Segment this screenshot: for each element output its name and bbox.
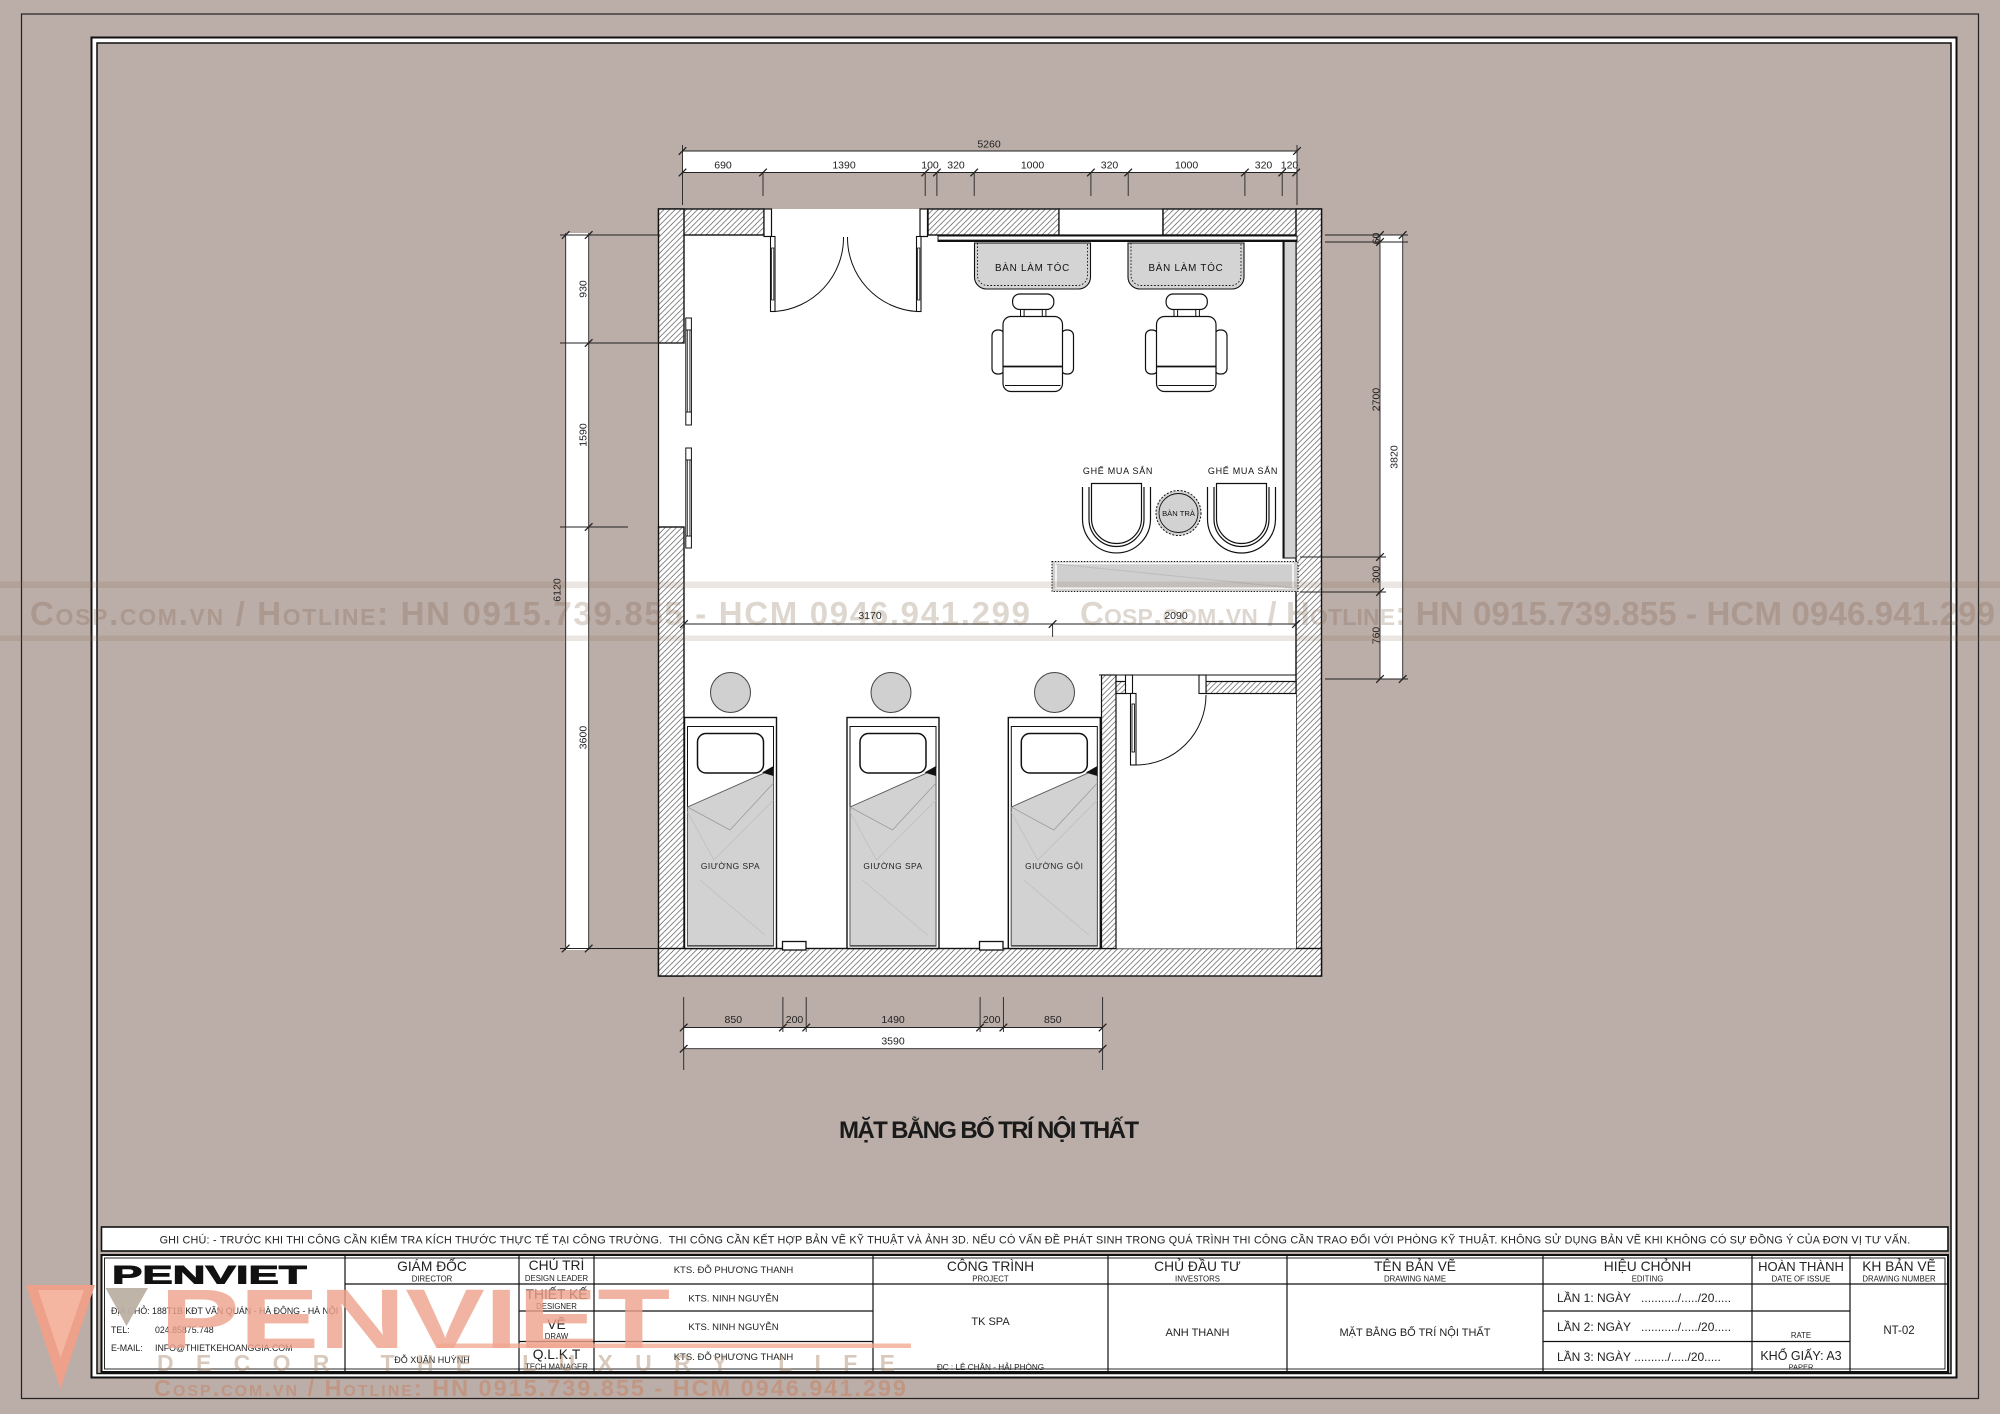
svg-text:KTS. ĐỖ PHƯƠNG THANH: KTS. ĐỖ PHƯƠNG THANH	[674, 1264, 794, 1276]
svg-text:KHỔ GIẤY: A3: KHỔ GIẤY: A3	[1760, 1348, 1841, 1363]
svg-text:HIỆU CHỎNH: HIỆU CHỎNH	[1604, 1257, 1691, 1274]
svg-text:GIƯỜNG SPA: GIƯỜNG SPA	[701, 861, 760, 871]
svg-text:BÀN LÀM TÓC: BÀN LÀM TÓC	[1148, 263, 1223, 274]
svg-text:CHỦ ĐẦU TƯ: CHỦ ĐẦU TƯ	[1154, 1257, 1241, 1274]
svg-text:GHI CHÚ: - TRƯỚC KHI THI CÔNG: GHI CHÚ: - TRƯỚC KHI THI CÔNG CẦN KIỂM T…	[160, 1234, 1911, 1247]
svg-text:HOÀN THÀNH: HOÀN THÀNH	[1758, 1259, 1844, 1274]
svg-text:320: 320	[1101, 160, 1119, 172]
svg-text:300: 300	[1371, 566, 1383, 584]
svg-text:E-MAIL:: E-MAIL:	[111, 1343, 143, 1353]
svg-text:1000: 1000	[1021, 160, 1045, 172]
svg-text:KTS. NINH NGUYỄN: KTS. NINH NGUYỄN	[688, 1293, 778, 1305]
svg-text:Cosp.com.vn / Hotline: HN 0915: Cosp.com.vn / Hotline: HN 0915.739.855 -…	[1080, 595, 1995, 632]
svg-text:NT-02: NT-02	[1883, 1325, 1914, 1337]
svg-text:320: 320	[1255, 160, 1273, 172]
svg-text:3820: 3820	[1389, 445, 1401, 469]
svg-text:3590: 3590	[881, 1036, 905, 1048]
svg-text:BÀN LÀM TÓC: BÀN LÀM TÓC	[995, 263, 1070, 274]
svg-text:100: 100	[921, 160, 939, 172]
svg-text:Cosp.com.vn / Hotline: HN 0915: Cosp.com.vn / Hotline: HN 0915.739.855 -…	[30, 595, 1030, 632]
svg-text:MẶT BẰNG BỐ TRÍ NỘI THẤT: MẶT BẰNG BỐ TRÍ NỘI THẤT	[1340, 1325, 1491, 1339]
svg-text:850: 850	[725, 1014, 743, 1026]
svg-text:1390: 1390	[832, 160, 856, 172]
svg-text:DATE OF ISSUE: DATE OF ISSUE	[1772, 1275, 1831, 1284]
svg-text:RATE: RATE	[1791, 1331, 1811, 1340]
svg-text:LẦN 1: NGÀY .........../....: LẦN 1: NGÀY .........../...../20.....	[1557, 1290, 1731, 1305]
svg-text:320: 320	[947, 160, 965, 172]
svg-text:2700: 2700	[1371, 388, 1383, 412]
svg-text:200: 200	[983, 1014, 1001, 1026]
svg-text:DRAWING NUMBER: DRAWING NUMBER	[1862, 1275, 1936, 1284]
svg-text:1490: 1490	[881, 1014, 905, 1026]
svg-text:1590: 1590	[578, 423, 590, 447]
svg-text:ANH THANH: ANH THANH	[1166, 1327, 1230, 1339]
svg-text:CHỦ TRÌ: CHỦ TRÌ	[529, 1256, 585, 1273]
svg-text:60: 60	[1371, 233, 1383, 245]
svg-text:PROJECT: PROJECT	[972, 1275, 1009, 1284]
svg-text:LẦN 2: NGÀY .........../....: LẦN 2: NGÀY .........../...../20.....	[1557, 1319, 1731, 1334]
svg-text:EDITING: EDITING	[1632, 1275, 1664, 1284]
svg-text:200: 200	[786, 1014, 804, 1026]
svg-text:KH BẢN VẼ: KH BẢN VẼ	[1862, 1258, 1936, 1274]
svg-text:5260: 5260	[977, 139, 1001, 151]
svg-text:MẶT BẰNG BỐ TRÍ NỘI THẤT: MẶT BẰNG BỐ TRÍ NỘI THẤT	[839, 1116, 1139, 1144]
svg-text:DRAWING NAME: DRAWING NAME	[1384, 1275, 1446, 1284]
svg-text:TEL:: TEL:	[111, 1325, 130, 1335]
svg-text:1000: 1000	[1175, 160, 1199, 172]
svg-text:690: 690	[714, 160, 732, 172]
svg-text:850: 850	[1044, 1014, 1062, 1026]
svg-text:GIƯỜNG GỘI: GIƯỜNG GỘI	[1025, 860, 1083, 871]
svg-text:Cosp.com.vn / Hotline: HN 0915: Cosp.com.vn / Hotline: HN 0915.739.855 -…	[154, 1375, 906, 1401]
svg-text:GIƯỜNG SPA: GIƯỜNG SPA	[863, 861, 922, 871]
svg-text:PAPER: PAPER	[1789, 1363, 1814, 1372]
svg-text:TK SPA: TK SPA	[971, 1316, 1010, 1328]
svg-text:GHẾ MUA SẮN: GHẾ MUA SẮN	[1208, 466, 1278, 476]
svg-text:LẦN 3: NGÀY ........../...../2: LẦN 3: NGÀY ........../...../20.....	[1557, 1349, 1721, 1364]
svg-text:3600: 3600	[578, 726, 590, 750]
svg-text:BÀN TRÀ: BÀN TRÀ	[1162, 509, 1196, 518]
svg-text:930: 930	[578, 280, 590, 298]
svg-text:ĐC : LÊ CHÂN - HẢI PHÒNG: ĐC : LÊ CHÂN - HẢI PHÒNG	[937, 1361, 1044, 1372]
svg-text:120: 120	[1281, 160, 1299, 172]
svg-text:INVESTORS: INVESTORS	[1175, 1275, 1220, 1284]
svg-text:TÊN BẢN VẼ: TÊN BẢN VẼ	[1374, 1258, 1456, 1274]
svg-text:KTS. NINH NGUYỄN: KTS. NINH NGUYỄN	[688, 1321, 778, 1333]
svg-text:CÔNG TRÌNH: CÔNG TRÌNH	[947, 1258, 1034, 1274]
svg-text:GHẾ MUA SẮN: GHẾ MUA SẮN	[1083, 466, 1153, 476]
